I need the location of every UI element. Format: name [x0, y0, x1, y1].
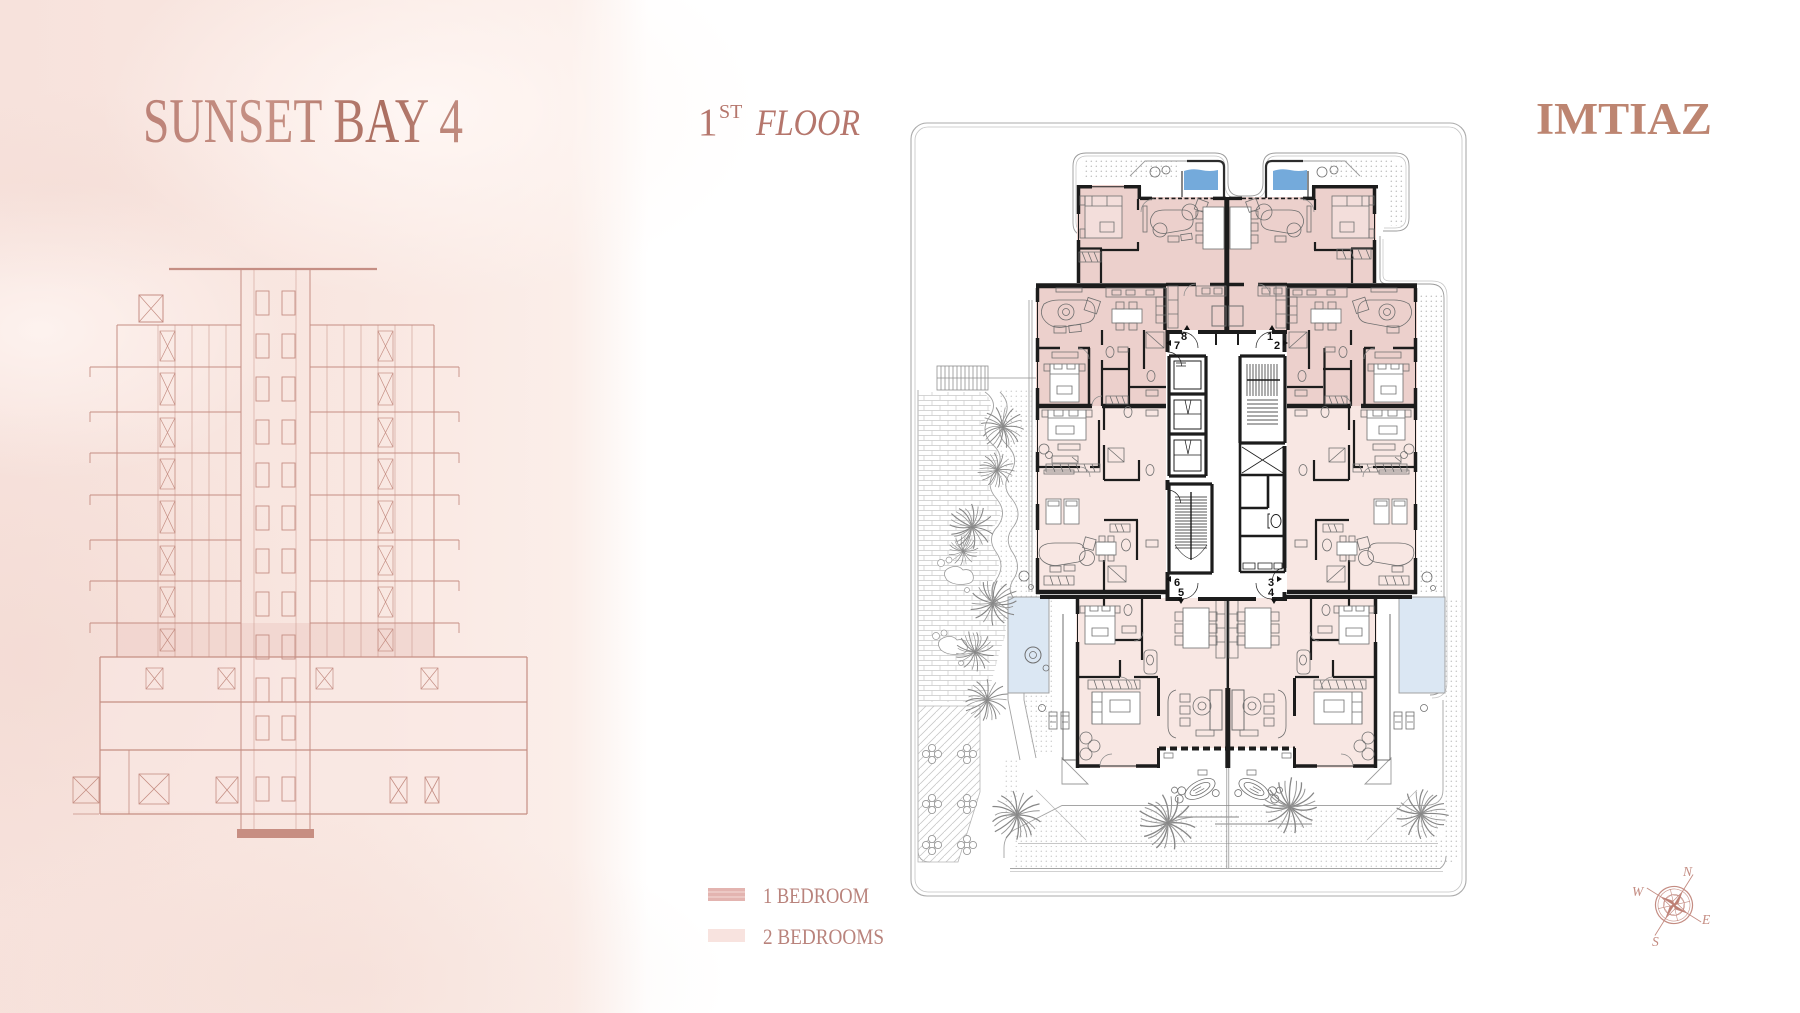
svg-text:5: 5: [1178, 587, 1184, 599]
svg-text:2: 2: [1274, 340, 1280, 352]
svg-text:FLOOR: FLOOR: [755, 103, 860, 144]
svg-text:8: 8: [1181, 331, 1187, 343]
svg-text:4: 4: [1268, 587, 1275, 599]
svg-text:E: E: [1701, 912, 1711, 927]
svg-text:N: N: [1682, 864, 1693, 879]
svg-text:S: S: [1652, 934, 1659, 949]
svg-text:1: 1: [1267, 331, 1273, 343]
svg-text:IMTIAZ: IMTIAZ: [1536, 94, 1712, 144]
svg-text:2 BEDROOMS: 2 BEDROOMS: [763, 924, 884, 949]
svg-text:7: 7: [1174, 340, 1180, 352]
svg-text:SUNSET BAY 4: SUNSET BAY 4: [143, 86, 463, 156]
svg-text:W: W: [1632, 884, 1645, 899]
svg-text:ST: ST: [719, 101, 742, 123]
svg-text:1: 1: [698, 101, 718, 144]
svg-text:1 BEDROOM: 1 BEDROOM: [763, 883, 869, 908]
